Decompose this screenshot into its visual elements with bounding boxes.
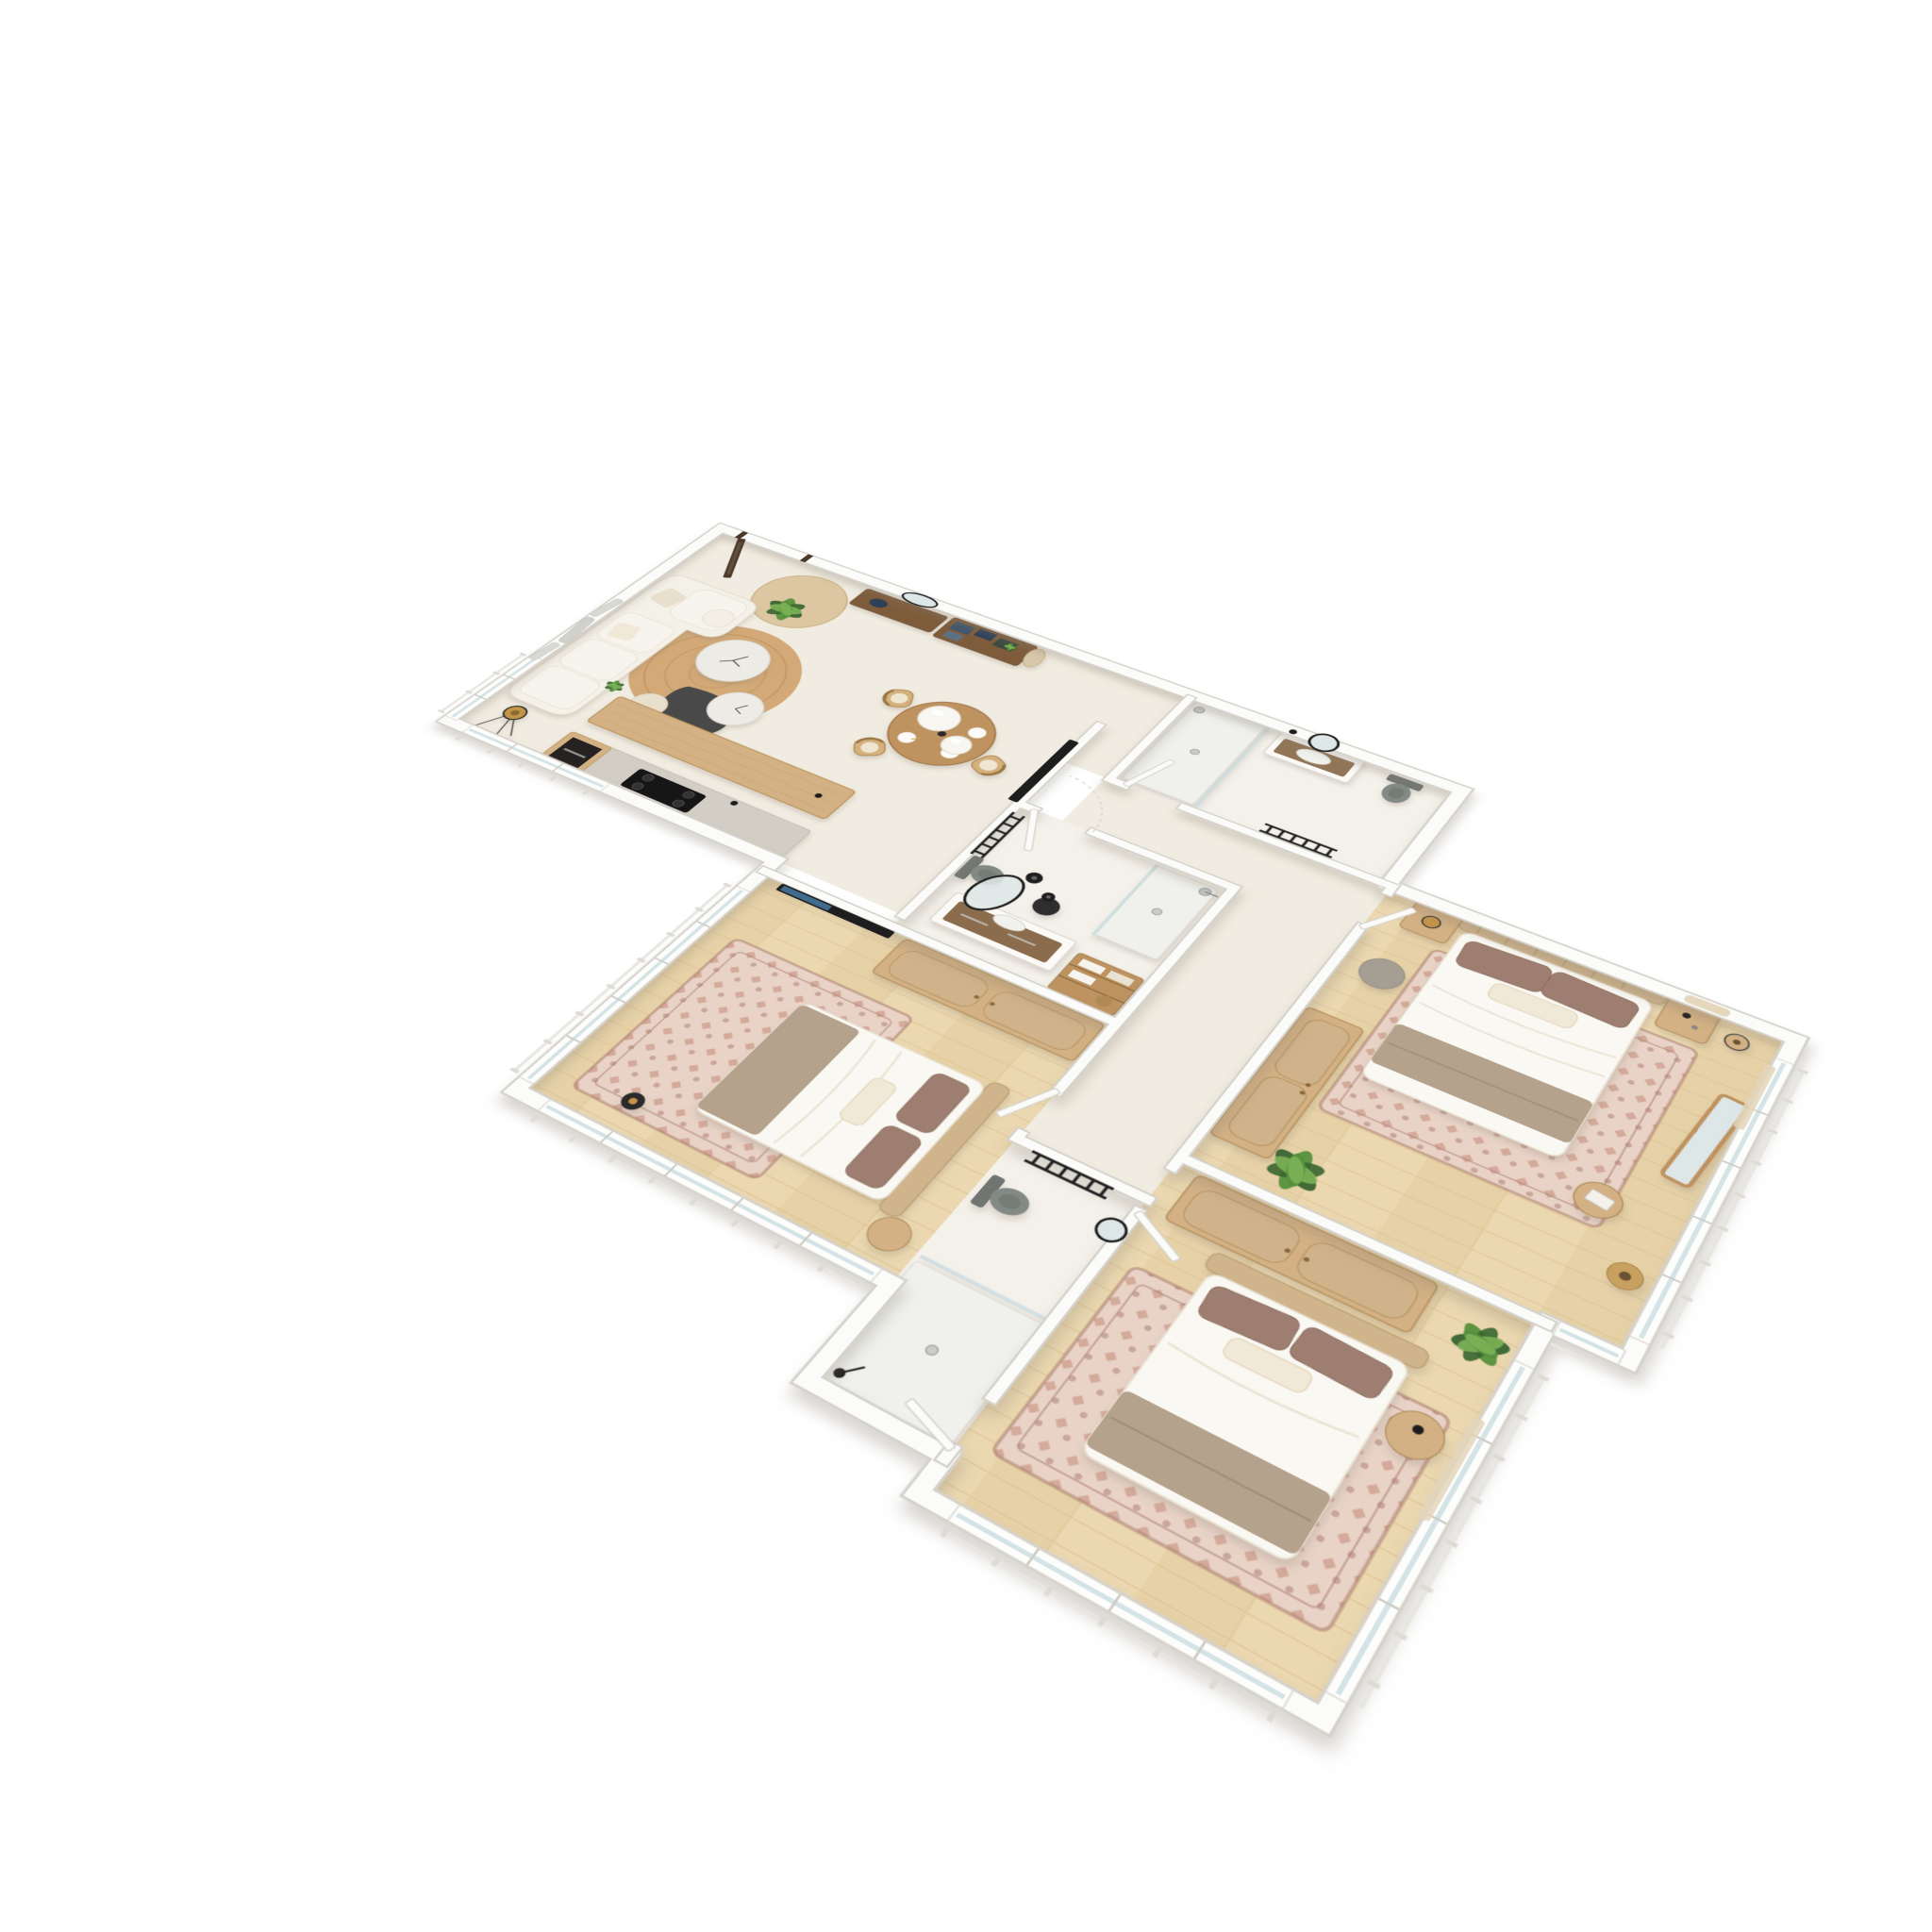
floor-plan (43, 528, 1854, 1771)
dining-chair (855, 738, 886, 756)
render-scene (0, 0, 1932, 1932)
furniture (91, 534, 1841, 1712)
floor-plan-svg (0, 501, 1918, 1881)
